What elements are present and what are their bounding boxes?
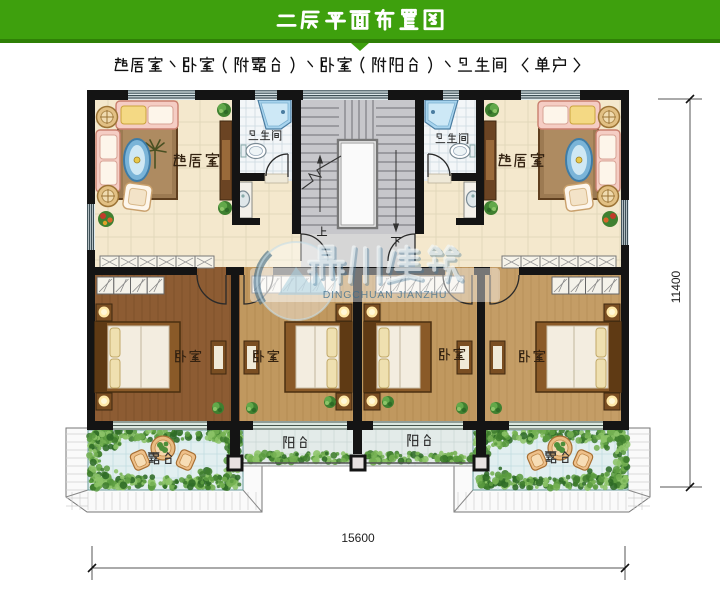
svg-text:DINGCHUAN JIANZHU: DINGCHUAN JIANZHU — [323, 289, 447, 301]
svg-text:11400: 11400 — [669, 270, 683, 303]
svg-text:15600: 15600 — [341, 531, 375, 545]
